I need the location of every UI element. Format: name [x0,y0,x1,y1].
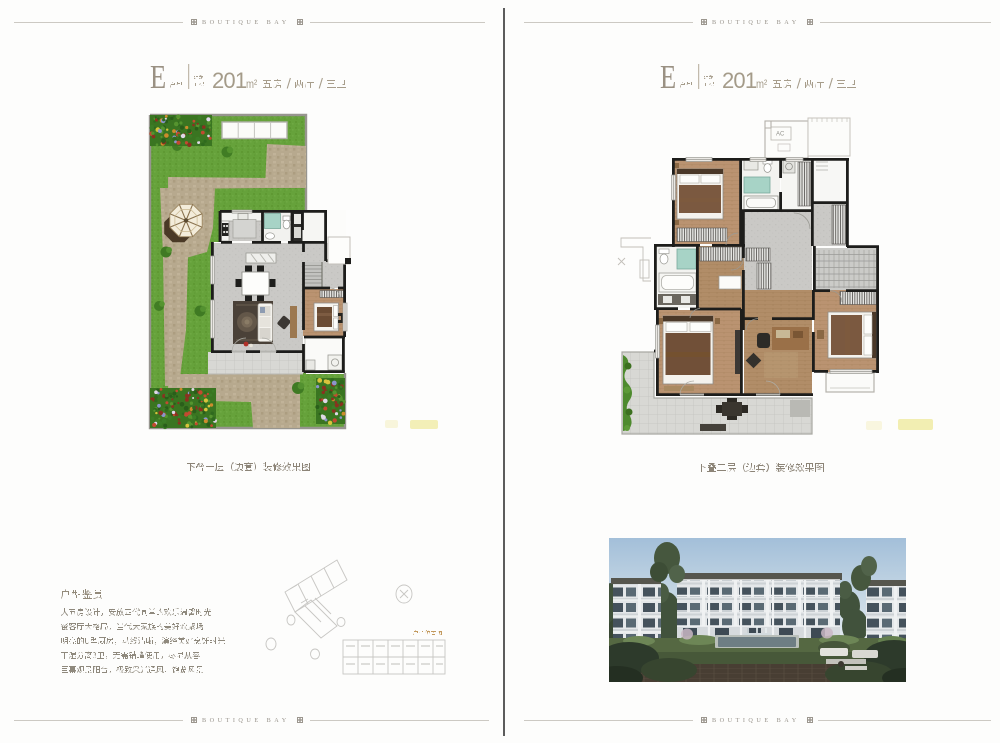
svg-text:AC: AC [776,132,785,138]
